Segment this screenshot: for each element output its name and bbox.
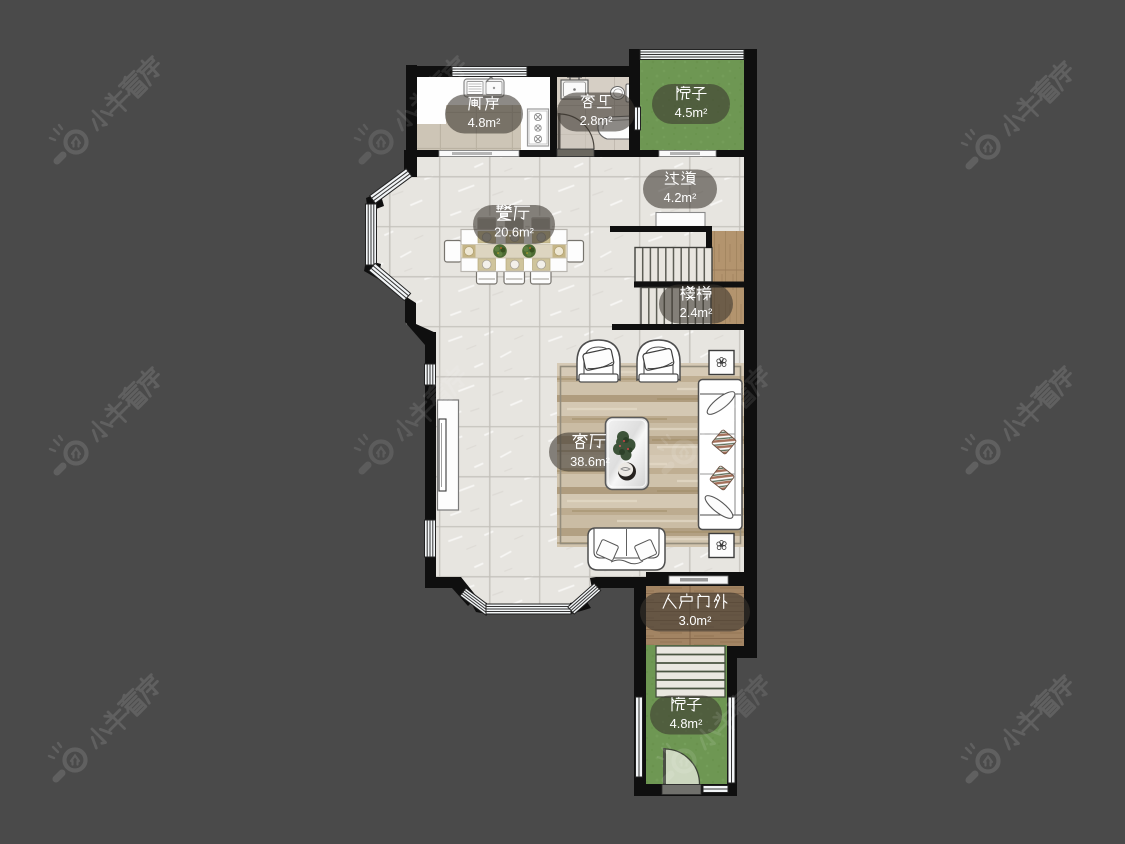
svg-text:4.8m²: 4.8m² [468, 115, 501, 130]
svg-text:3.0m²: 3.0m² [679, 613, 712, 628]
svg-text:4.5m²: 4.5m² [675, 105, 708, 120]
svg-text:2.8m²: 2.8m² [580, 113, 613, 128]
svg-text:2.4m²: 2.4m² [680, 305, 713, 320]
svg-text:38.6m²: 38.6m² [570, 454, 611, 469]
svg-text:20.6m²: 20.6m² [494, 225, 535, 240]
svg-text:4.8m²: 4.8m² [670, 716, 703, 731]
svg-text:4.2m²: 4.2m² [664, 190, 697, 205]
